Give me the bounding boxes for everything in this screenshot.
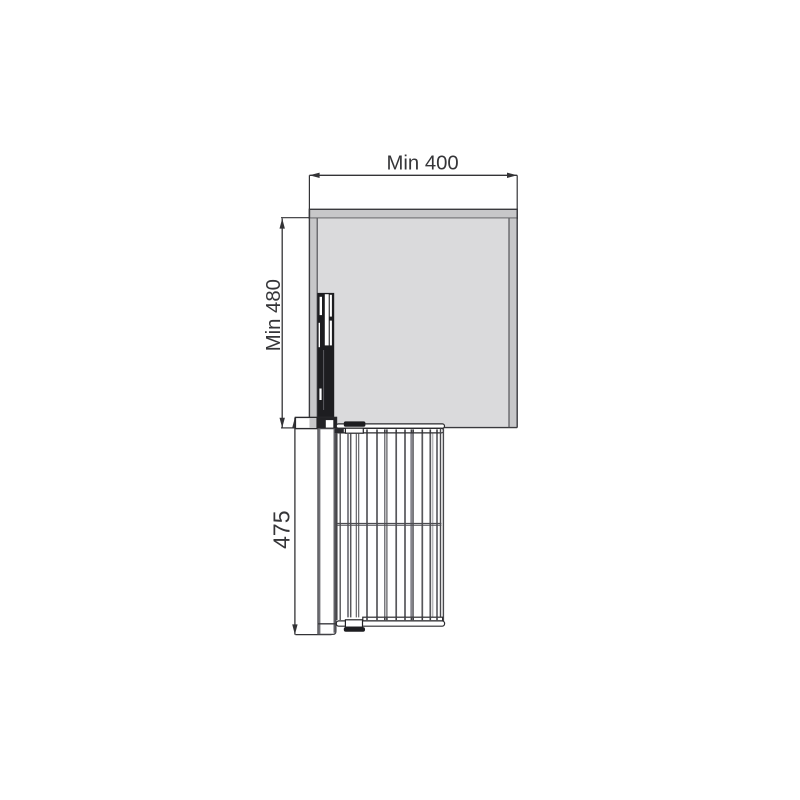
svg-text:475: 475 — [269, 511, 295, 549]
svg-text:Min 400: Min 400 — [387, 153, 459, 175]
